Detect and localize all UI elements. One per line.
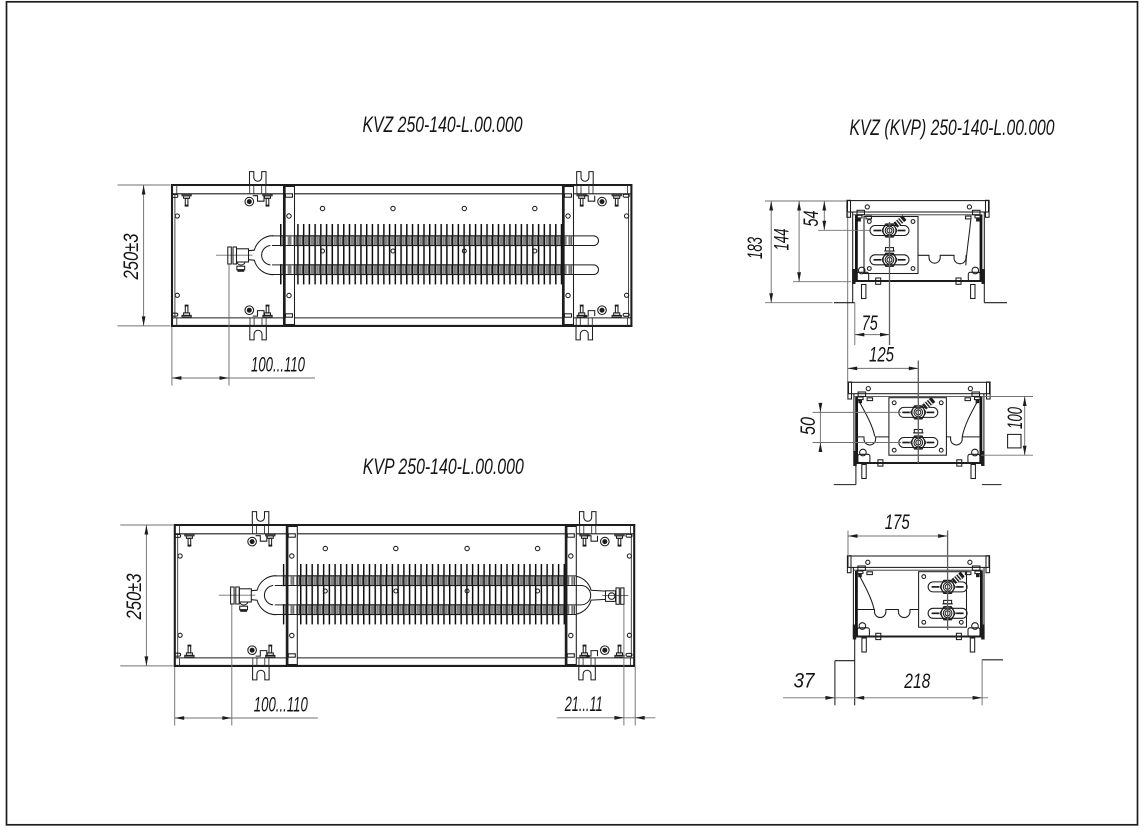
svg-text:144: 144 xyxy=(771,229,794,251)
svg-text:100...110: 100...110 xyxy=(251,354,305,377)
svg-text:175: 175 xyxy=(885,511,910,534)
svg-text:183: 183 xyxy=(744,237,767,259)
svg-text:100...110: 100...110 xyxy=(254,694,308,717)
svg-text:218: 218 xyxy=(904,670,931,693)
svg-text:250±3: 250±3 xyxy=(120,233,143,280)
svg-text:250±3: 250±3 xyxy=(123,573,146,620)
svg-text:KVP 250-140-L.00.000: KVP 250-140-L.00.000 xyxy=(363,454,525,479)
svg-text:54: 54 xyxy=(800,211,823,227)
svg-text:75: 75 xyxy=(862,312,878,335)
svg-text:37: 37 xyxy=(794,670,816,693)
svg-text:125: 125 xyxy=(869,344,894,367)
svg-text:KVZ (KVP) 250-140-L.00.000: KVZ (KVP) 250-140-L.00.000 xyxy=(850,115,1056,140)
svg-text:21...11: 21...11 xyxy=(564,693,603,716)
svg-text:100: 100 xyxy=(1004,407,1027,429)
svg-text:50: 50 xyxy=(797,417,820,435)
svg-text:KVZ 250-140-L.00.000: KVZ 250-140-L.00.000 xyxy=(363,112,524,137)
